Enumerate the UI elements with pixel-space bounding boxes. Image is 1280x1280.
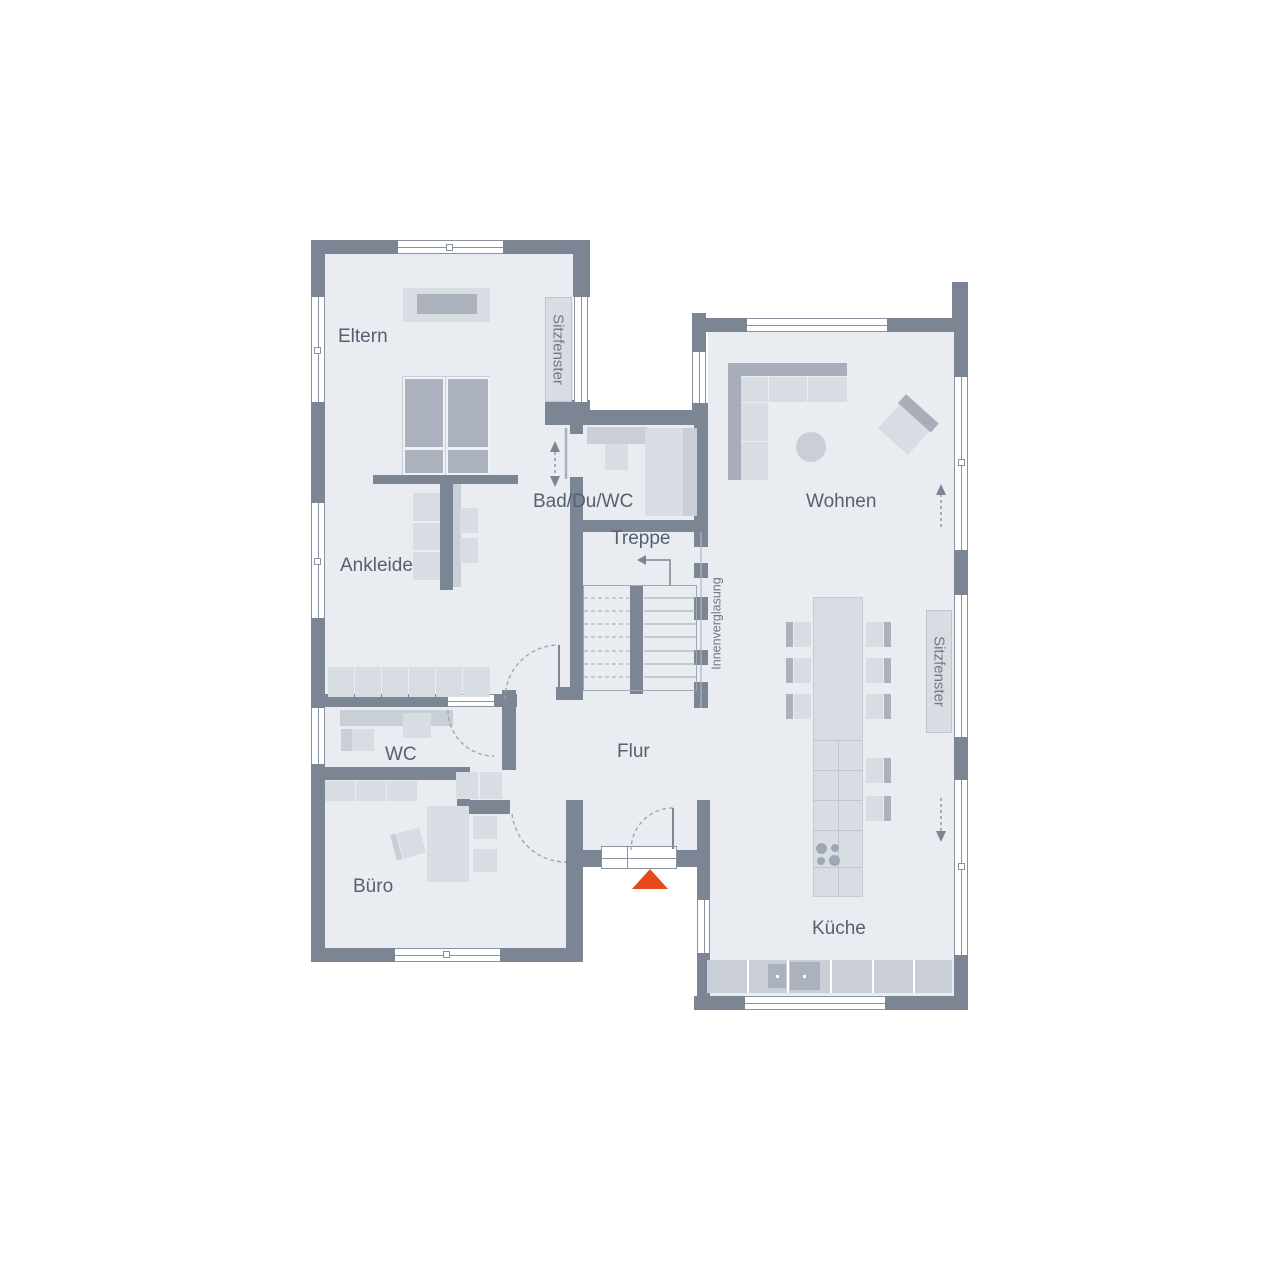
- room-label-treppe: Treppe: [611, 529, 671, 548]
- annotation-sitzfenster-left: Sitzfenster: [551, 297, 566, 403]
- stair-direction-line: [644, 560, 670, 586]
- room-label-kueche: Küche: [812, 919, 866, 938]
- arrow-up-icon: [550, 441, 560, 452]
- stair-direction-arrowhead: [637, 555, 646, 565]
- room-label-flur: Flur: [617, 742, 650, 761]
- arrow-up-icon: [936, 484, 946, 495]
- entrance-marker: [632, 869, 668, 889]
- floor-plan: Eltern Ankleide Bad/Du/WC Treppe WC Büro…: [0, 0, 1280, 1280]
- room-label-buero: Büro: [353, 877, 393, 896]
- room-label-eltern: Eltern: [338, 327, 388, 346]
- door-arc-wc: [448, 710, 494, 756]
- room-label-ankleide: Ankleide: [340, 556, 413, 575]
- room-label-wohnen: Wohnen: [806, 492, 876, 511]
- arrow-down-icon: [550, 476, 560, 487]
- door-arc-buero: [512, 814, 566, 862]
- annotation-sitzfenster-right: Sitzfenster: [932, 614, 947, 730]
- arrow-down-icon: [936, 831, 946, 842]
- annotation-innenverglasung: Innenverglasung: [711, 569, 724, 679]
- door-arc-ankleide: [505, 645, 559, 699]
- stair-treads-dashed: [584, 598, 629, 677]
- stairs: [584, 586, 697, 691]
- room-label-bad: Bad/Du/WC: [533, 492, 633, 511]
- stair-treads-solid: [644, 598, 696, 677]
- room-label-wc: WC: [385, 745, 417, 764]
- door-arc-entrance: [631, 808, 673, 850]
- plan-linework: [0, 0, 1280, 1280]
